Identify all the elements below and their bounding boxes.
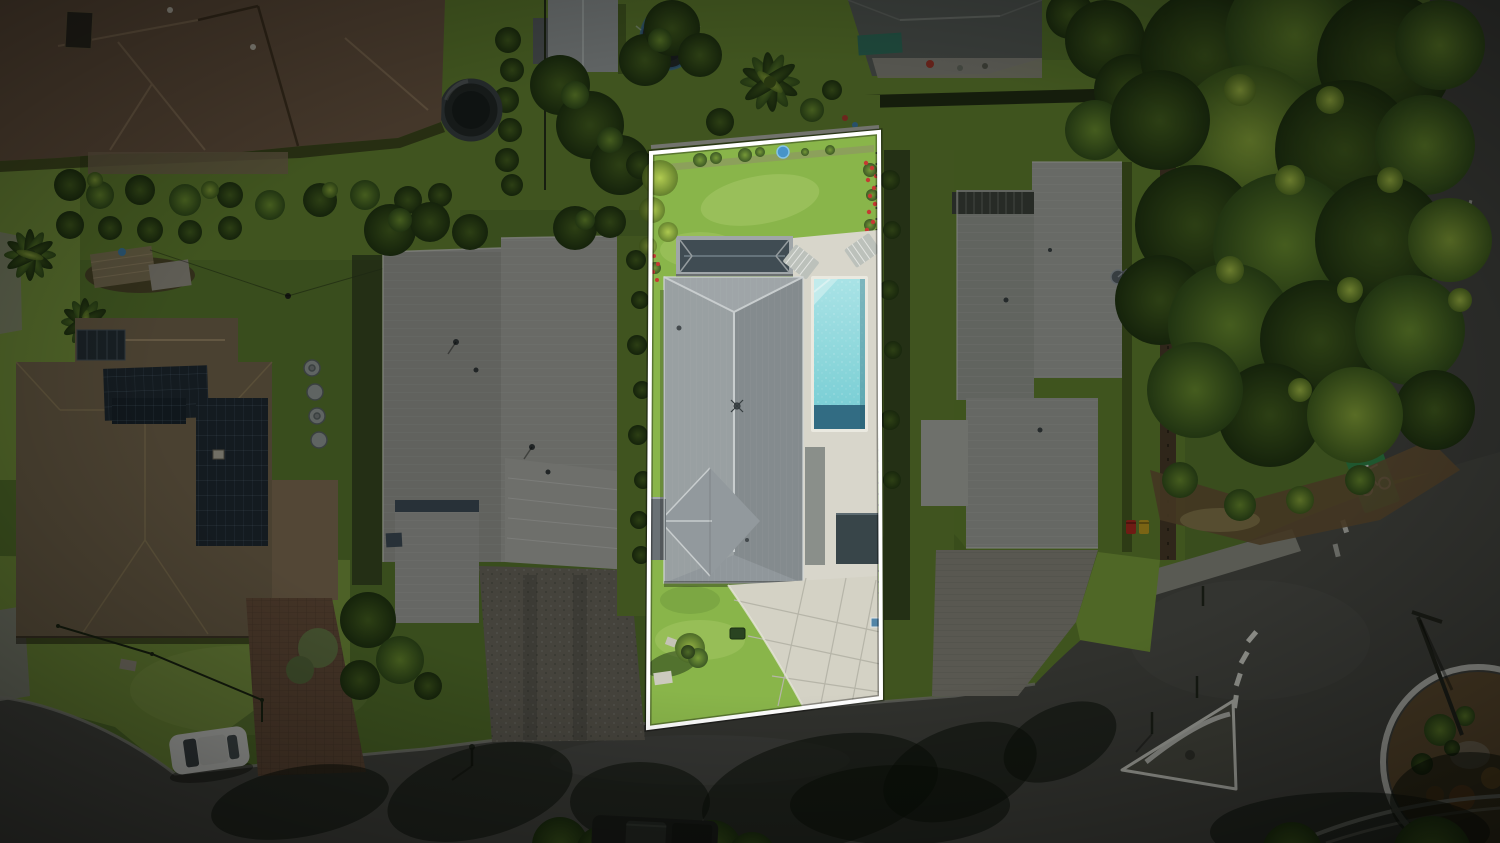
aerial-photo: Aerial drone photograph of a residential… [0, 0, 1500, 843]
aerial-photo-canvas: Aerial drone photograph of a residential… [0, 0, 1500, 843]
featured-property [639, 132, 881, 728]
